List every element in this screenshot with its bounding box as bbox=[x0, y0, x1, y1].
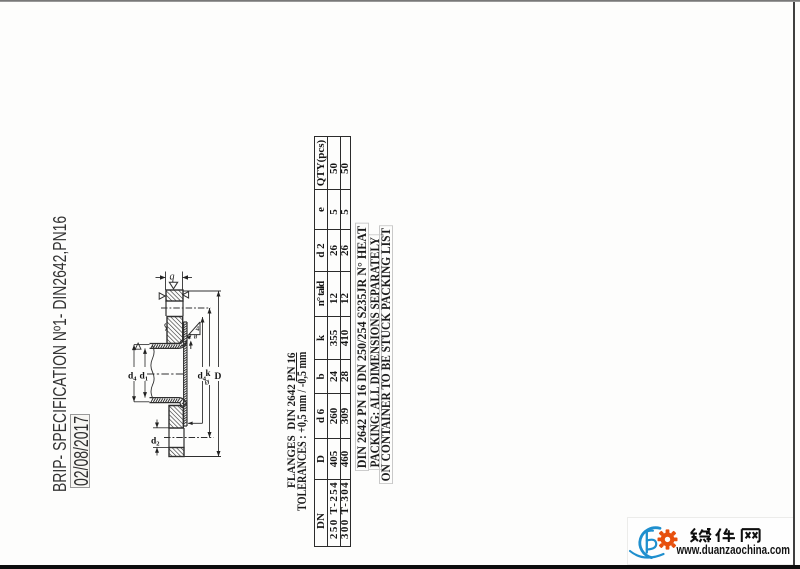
svg-text:d2: d2 bbox=[151, 437, 160, 448]
svg-text:D: D bbox=[215, 372, 222, 382]
svg-text:4: 4 bbox=[196, 324, 200, 333]
svg-text:d1: d1 bbox=[140, 372, 149, 383]
svg-text:www.duanzaochina.com: www.duanzaochina.com bbox=[676, 543, 790, 557]
svg-text:q: q bbox=[170, 272, 175, 283]
svg-text:ø: ø bbox=[205, 377, 210, 387]
svg-text:d4: d4 bbox=[128, 372, 137, 383]
